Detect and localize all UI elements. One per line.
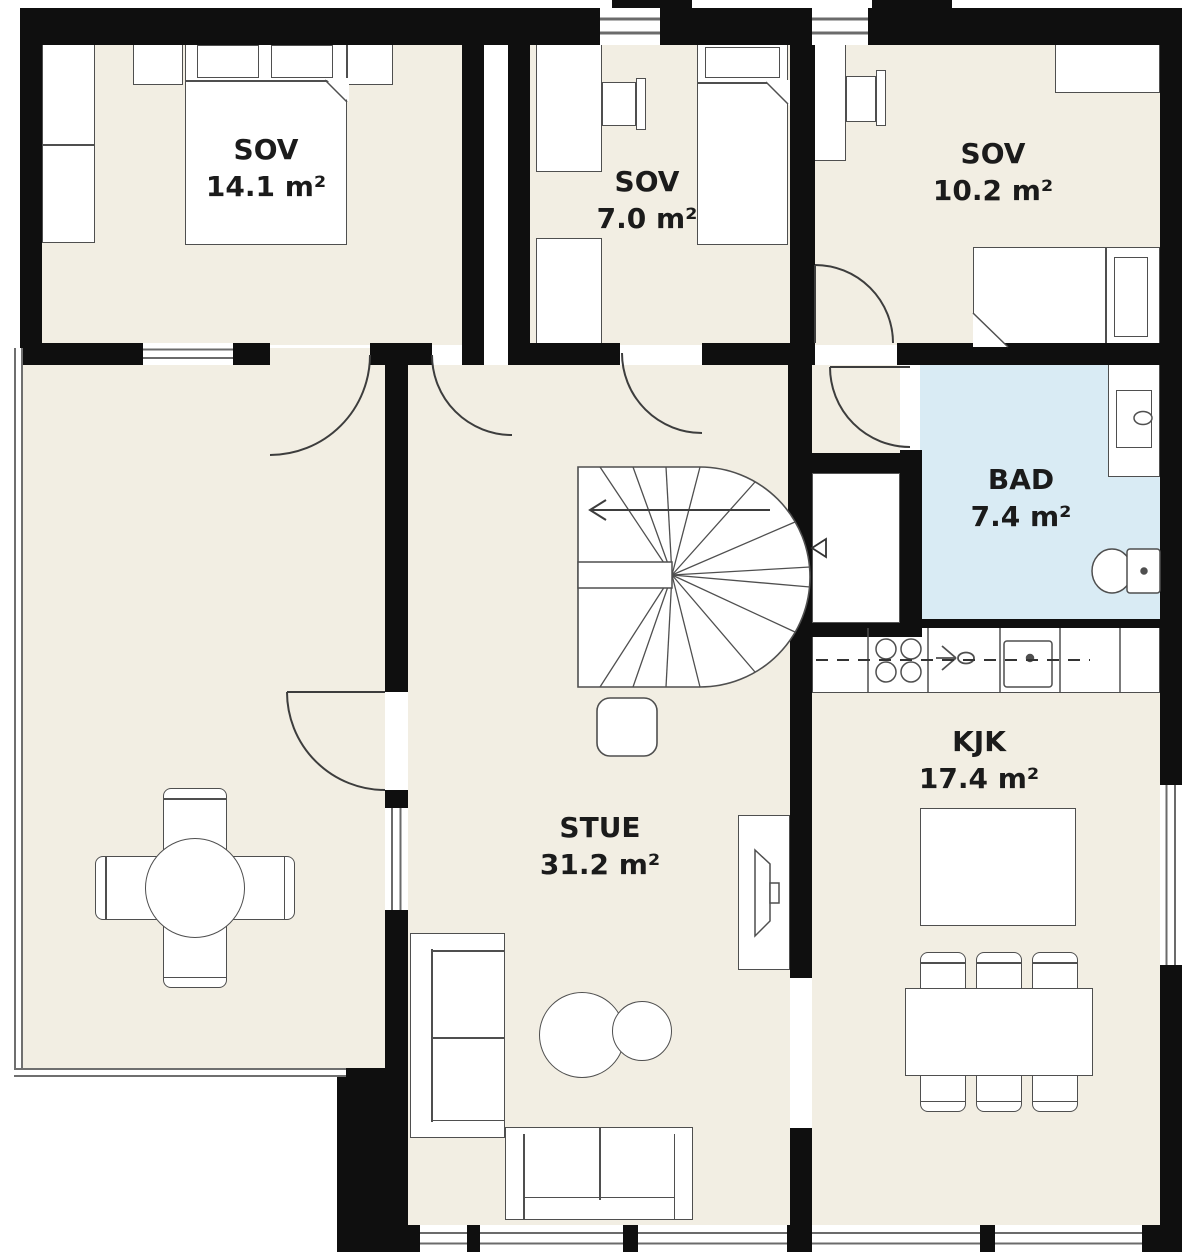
kitchen-island [920, 808, 1076, 926]
desk [812, 33, 846, 161]
wall [788, 343, 812, 637]
pillow [197, 45, 259, 78]
room-name: SOV [597, 163, 698, 200]
room-label-stue: STUE 31.2 m² [540, 809, 660, 883]
wall [900, 450, 922, 625]
room-name: STUE [540, 809, 660, 846]
vestibule-floor [812, 365, 900, 455]
room-label-sov1: SOV 14.1 m² [206, 131, 326, 205]
wall [467, 1225, 480, 1252]
wall [337, 1068, 408, 1252]
room-name: SOV [933, 135, 1053, 172]
dining-chair [1032, 952, 1078, 990]
room-area: 10.2 m² [933, 172, 1053, 209]
dining-chair [976, 1074, 1022, 1112]
bed-edge [185, 80, 347, 82]
dining-chair [920, 952, 966, 990]
wall [408, 1225, 420, 1252]
wall [1160, 8, 1182, 785]
window [638, 1225, 787, 1252]
dining-chair [976, 952, 1022, 990]
wall [20, 8, 42, 365]
wall [233, 343, 270, 365]
wardrobe [536, 238, 602, 345]
terrace-table [145, 838, 245, 938]
chair-back [636, 78, 646, 130]
shower-tray [1116, 390, 1152, 448]
room-area: 7.4 m² [971, 498, 1072, 535]
room-label-sov3: SOV 10.2 m² [933, 135, 1053, 209]
wall [790, 623, 812, 978]
window [1160, 785, 1182, 965]
coffee-table [612, 1001, 672, 1061]
room-area: 17.4 m² [919, 760, 1039, 797]
room-label-bad: BAD 7.4 m² [971, 461, 1072, 535]
floor-plan: SOV 14.1 m² SOV 7.0 m² SOV 10.2 m² BAD 7… [0, 0, 1200, 1258]
sofa [505, 1127, 693, 1220]
wall [623, 1225, 638, 1252]
wall [462, 8, 484, 365]
desk-chair [602, 82, 636, 126]
room-area: 7.0 m² [597, 200, 698, 237]
wall [385, 790, 408, 808]
room-name: BAD [971, 461, 1072, 498]
terrace-wall [14, 1068, 346, 1077]
window [420, 1225, 467, 1252]
wall [1160, 965, 1182, 1252]
wall [1142, 1225, 1182, 1252]
window [812, 1225, 980, 1252]
dining-chair [1032, 1074, 1078, 1112]
terrace-wall [14, 348, 23, 1075]
room-label-kjk: KJK 17.4 m² [919, 723, 1039, 797]
wall [980, 1225, 995, 1252]
room-name: SOV [206, 131, 326, 168]
closet-room-floor [812, 473, 900, 623]
wardrobe [42, 33, 95, 243]
window [480, 1225, 623, 1252]
window [600, 8, 660, 45]
wall [920, 619, 1160, 628]
room-label-sov2: SOV 7.0 m² [597, 163, 698, 237]
dining-table [905, 988, 1093, 1076]
pillow [271, 45, 333, 78]
wall [512, 343, 620, 365]
wall [787, 1225, 812, 1252]
window [995, 1225, 1142, 1252]
room-area: 31.2 m² [540, 846, 660, 883]
pillow [705, 47, 780, 78]
room-area: 14.1 m² [206, 168, 326, 205]
dining-chair [920, 1074, 966, 1112]
chair-back [876, 70, 886, 126]
tv-bench [738, 815, 790, 970]
wall [385, 343, 408, 692]
wall [897, 343, 1160, 365]
wall [868, 8, 1182, 45]
bed-edge [697, 82, 788, 84]
sofa [410, 933, 505, 1138]
wall [508, 8, 530, 365]
wall [790, 8, 815, 365]
desk-chair [846, 76, 876, 122]
window [143, 343, 233, 365]
wall [20, 343, 143, 365]
room-name: KJK [919, 723, 1039, 760]
window [812, 8, 868, 45]
window [385, 808, 408, 910]
pillow [1114, 257, 1148, 337]
desk [536, 32, 602, 172]
